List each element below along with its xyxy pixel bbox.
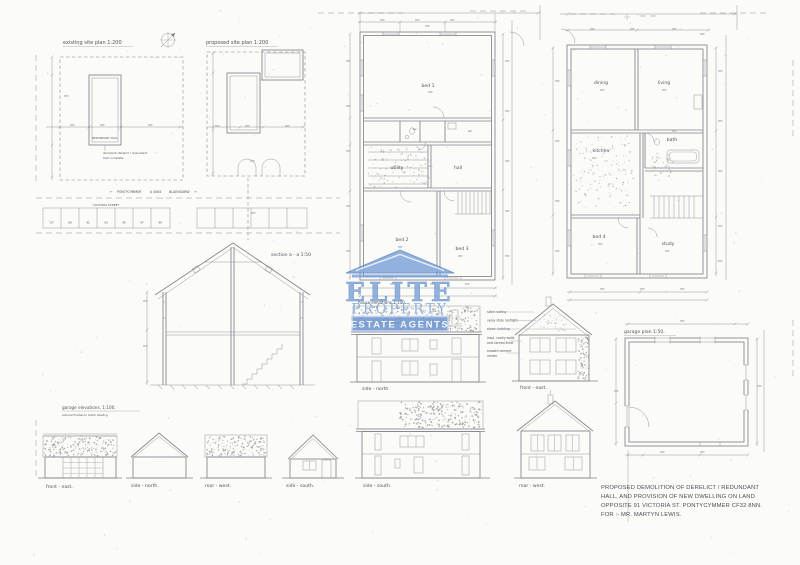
- annotation-render: render: [487, 354, 498, 358]
- drawing-sheet: existing site plan 1:200 REDUNDANT HALL …: [0, 0, 800, 565]
- garage-front-east-label: front - east.: [46, 484, 73, 490]
- cylinder-stipple: [651, 153, 673, 181]
- room-bed4: bed 4: [592, 234, 605, 240]
- house-number: 87: [50, 221, 54, 225]
- room-utility: utility: [390, 165, 403, 171]
- proposed-site-plan: proposed site plan 1:200: [206, 40, 305, 240]
- watermark-tagline: PROPERTY: [351, 302, 448, 318]
- title-line-1: PROPOSED DEMOLITION OF DERELICT / REDUND…: [601, 485, 759, 491]
- demolish-note-line2: hall complete.: [103, 156, 124, 160]
- garage-rear-west-label: rear - west.: [205, 483, 231, 489]
- annotation-smooth-cement: smooth cement: [487, 349, 512, 353]
- title-line-4: FOR :- MR. MARTYN LEWIS.: [601, 512, 682, 518]
- annotation-cavity-walls: insul. cavity walls: [487, 336, 515, 340]
- watermark-badge: ESTATE AGENTS: [351, 317, 450, 332]
- title-line-3: OPPOSITE 91 VICTORIA ST. PONTYCYMMER CF3…: [601, 503, 762, 509]
- road-arrow-left: ←: [110, 190, 113, 194]
- rear-west-house-label: rear - west.: [519, 483, 545, 489]
- section-title: section a - a 1:50: [271, 252, 311, 258]
- elevation-side-south-house: side - south.: [355, 401, 490, 489]
- garage-front-east: front - east.: [38, 434, 122, 490]
- stone-stipple: [577, 337, 589, 380]
- road-name-left: PONTYCYMMER: [117, 190, 142, 194]
- first-floor-plan: dining living kitchen bath bed 4 study: [552, 5, 738, 302]
- garage-side-south-label: side - south.: [286, 483, 314, 489]
- house-number: 99: [158, 221, 162, 225]
- north-arrow-icon: [160, 32, 176, 48]
- watermark-badge-text: ESTATE AGENTS: [351, 320, 450, 331]
- garage-elevations: garage elevations. 1:100. external finis…: [38, 405, 344, 490]
- garage-side-south: side - south.: [282, 435, 344, 489]
- annotation-slate-roofing: slate roofing: [487, 310, 506, 314]
- kitchen-stipple: [575, 135, 634, 208]
- project-title-block: PROPOSED DEMOLITION OF DERELICT / REDUND…: [601, 450, 762, 522]
- road-strip: ← PONTYCYMMER A 4064 BLAENGARW → VICTORI…: [36, 190, 340, 233]
- road-name-right: BLAENGARW: [169, 190, 190, 194]
- road-arrow-right: →: [194, 190, 197, 194]
- room-bed2: bed 2: [395, 237, 408, 243]
- front-east-label: front - east.: [520, 385, 547, 391]
- demolish-note-line1: demolish derelict / redundant: [103, 151, 148, 155]
- garage-side-north: side - north.: [126, 433, 193, 489]
- garage-rear-west: rear - west.: [200, 435, 272, 489]
- room-wc-right: wc: [468, 129, 472, 133]
- garage-elevations-title: garage elevations. 1:100.: [62, 405, 116, 410]
- elevation-annotations: slate roofing velux style rooflight ston…: [487, 310, 576, 358]
- side-south-house-label: side - south.: [363, 483, 391, 489]
- garage-plan: garage plan 1:50.: [615, 323, 765, 457]
- elevation-rear-west-house: rear - west.: [514, 390, 597, 489]
- redundant-hall-label: REDUNDANT HALL: [92, 136, 118, 140]
- house-number: 89: [68, 221, 72, 225]
- room-bath: bath: [667, 137, 678, 143]
- road-ref: A 4064: [150, 190, 161, 194]
- existing-site-plan: existing site plan 1:200 REDUNDANT HALL …: [46, 40, 183, 180]
- street-name-label: VICTORIA STREET: [93, 203, 120, 207]
- elite-logo-roof-icon: [346, 250, 454, 278]
- house-number: 91: [86, 221, 90, 225]
- roof-stipple-2: [399, 401, 482, 428]
- room-hall: hall: [454, 165, 462, 171]
- garage-plan-title: garage plan 1:50.: [624, 329, 665, 335]
- ground-floor-plan: bed 1 utility hall wc. wc bed 2 bed 3: [349, 5, 541, 298]
- room-wc-left: wc.: [412, 127, 417, 131]
- room-kitchen: kitchen: [593, 148, 610, 154]
- room-living: living: [658, 80, 670, 86]
- house-number: 95: [122, 221, 126, 225]
- room-bed1: bed 1: [421, 83, 434, 89]
- side-north-label: side - north.: [362, 386, 390, 392]
- room-study: study: [662, 241, 675, 247]
- garage-side-north-label: side - north.: [131, 483, 159, 489]
- proposed-site-plan-title: proposed site plan 1:200: [206, 40, 268, 46]
- house-numbers: 87 89 91 93 95 97 99: [50, 221, 162, 225]
- house-number: 97: [140, 221, 144, 225]
- annotation-vented-lintel: and vented lintel: [487, 341, 513, 345]
- elite-watermark-logo: ELITE PROPERTY ESTATE AGENTS: [345, 250, 454, 331]
- house-number: 93: [104, 221, 108, 225]
- existing-site-plan-title: existing site plan 1:200: [63, 40, 122, 46]
- room-bed3: bed 3: [455, 246, 468, 252]
- title-line-2: HALL, AND PROVISION OF NEW DWELLING ON L…: [601, 494, 755, 500]
- elevation-front-east: front - east.: [512, 297, 598, 391]
- garage-elevations-note: external finishes to match dwelling: [62, 413, 108, 417]
- section-a-a: section a - a 1:50: [146, 243, 316, 389]
- room-dining: dining: [594, 80, 608, 86]
